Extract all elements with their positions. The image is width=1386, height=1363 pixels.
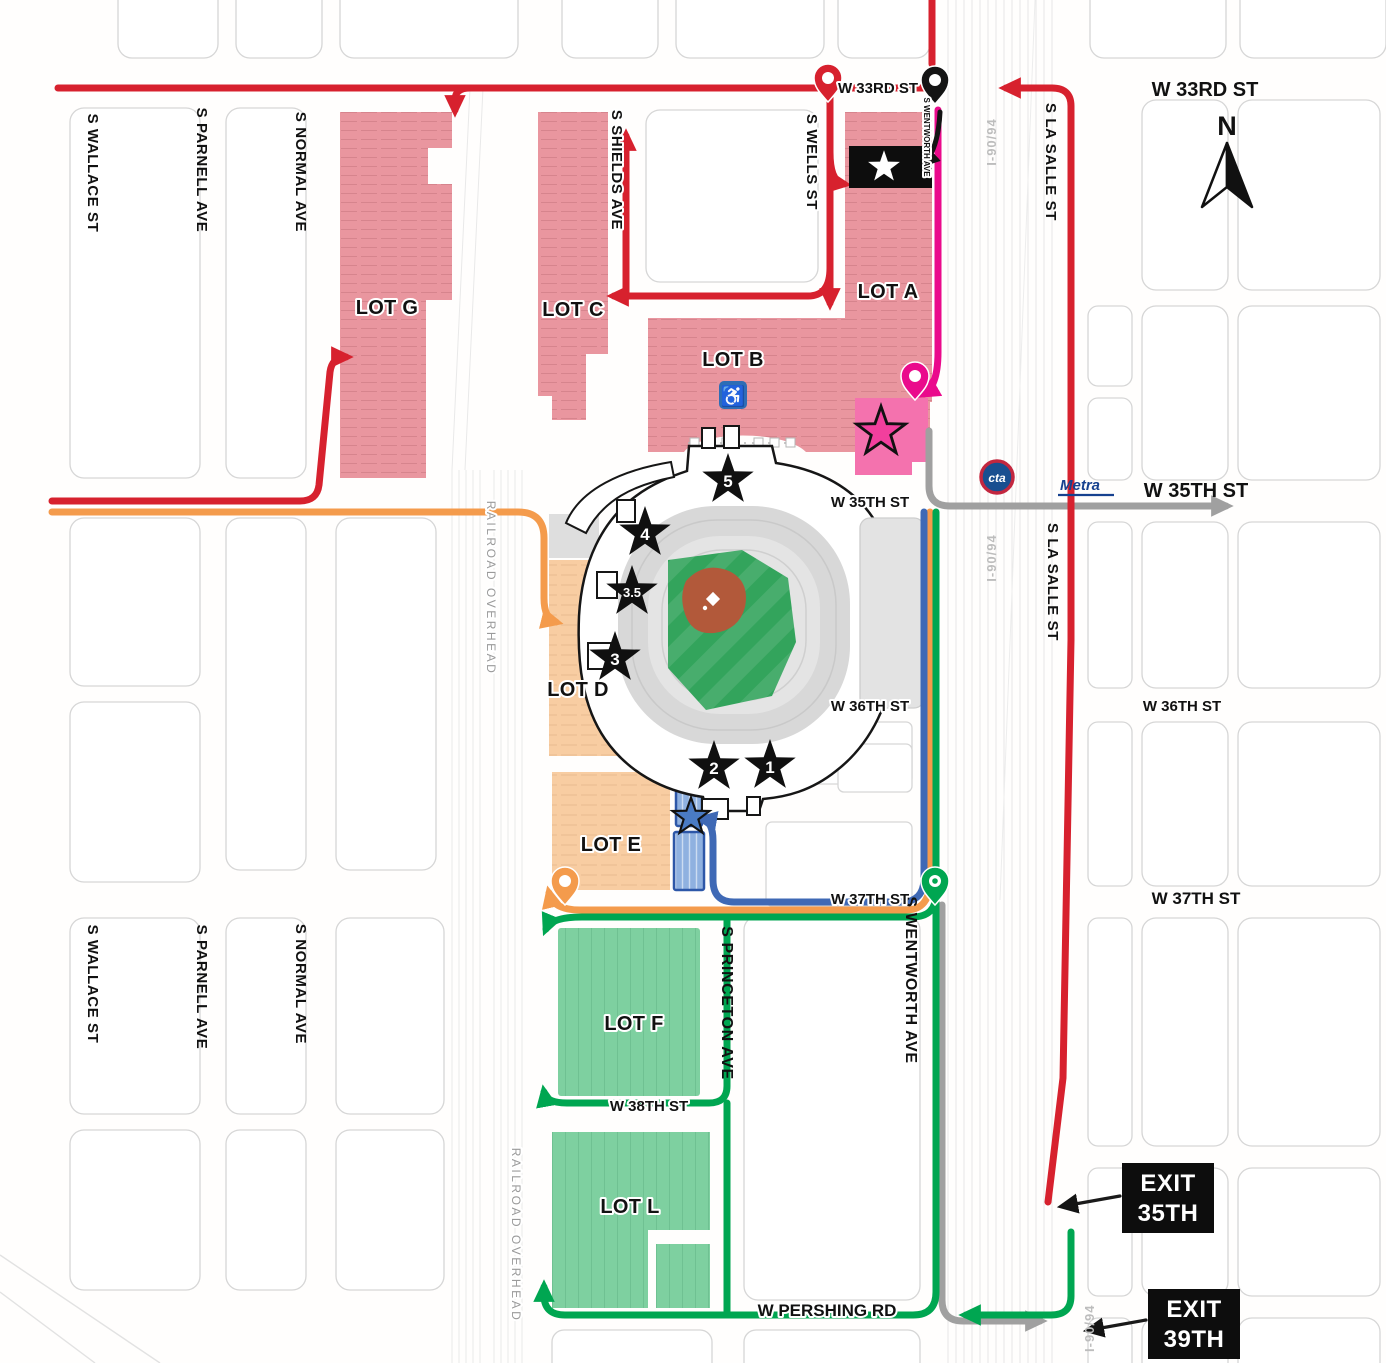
lot-c-label: LOT C xyxy=(542,299,604,321)
lot-f-label: LOT F xyxy=(604,1013,663,1035)
lot-g-shape xyxy=(340,112,452,478)
gate-3-label: 3 xyxy=(610,650,619,669)
gate-3-5-label: 3.5 xyxy=(623,585,641,600)
street-label-wallace-n: S WALLACE ST xyxy=(84,114,101,233)
lot-b-label: LOT B xyxy=(702,349,764,371)
exit-39th-badge: EXIT 39TH xyxy=(1148,1289,1240,1359)
street-label-w38th: W 38TH ST xyxy=(610,1098,688,1115)
street-label-shields: S SHIELDS AVE xyxy=(608,110,625,230)
map-canvas: 5 4 3.5 3 2 1 xyxy=(0,0,1386,1363)
street-label-pershing: W PERSHING RD xyxy=(758,1301,897,1320)
street-label-normal-n: S NORMAL AVE xyxy=(292,112,309,232)
street-label-normal-s: S NORMAL AVE xyxy=(292,924,309,1044)
street-label-w35th-mid: W 35TH ST xyxy=(831,494,909,511)
lot-c-shape xyxy=(538,112,608,420)
east-parking-structure xyxy=(860,518,924,708)
street-label-w37th-right: W 37TH ST xyxy=(1152,889,1241,908)
pitcher-mound xyxy=(703,606,707,610)
exit-35th-line1: EXIT xyxy=(1140,1170,1195,1197)
street-label-w36th-mid: W 36TH ST xyxy=(831,698,909,715)
street-label-lasalle-s: S LA SALLE ST xyxy=(1044,523,1061,641)
expressway-label-n: I-90/94 xyxy=(984,118,999,165)
street-label-w33rd-small: W 33RD ST xyxy=(838,80,918,97)
lot-d-label: LOT D xyxy=(547,679,609,701)
lot-l-annex-shape xyxy=(656,1244,710,1308)
street-label-wells: S WELLS ST xyxy=(803,114,820,210)
street-label-wentworth-small: S WENTWORTH AVE xyxy=(922,97,931,177)
street-label-lasalle-n: S LA SALLE ST xyxy=(1042,103,1059,221)
lot-l-label: LOT L xyxy=(600,1196,659,1218)
lot-f-shape xyxy=(558,928,700,1096)
street-label-parnell-s: S PARNELL AVE xyxy=(193,925,210,1050)
red-branch-normal xyxy=(455,88,470,110)
metra-logo-text: Metra xyxy=(1060,477,1100,494)
red-route-lasalle-33rd xyxy=(1006,88,1071,1202)
parking-traffic-map: 5 4 3.5 3 2 1 xyxy=(0,0,1386,1363)
north-label: N xyxy=(1217,111,1237,141)
street-label-wentworth-big: S WENTWORTH AVE xyxy=(902,896,919,1063)
cta-logo: cta xyxy=(981,461,1013,493)
exit-39th-line1: EXIT xyxy=(1166,1296,1221,1323)
street-label-parnell-n: S PARNELL AVE xyxy=(193,108,210,233)
street-label-princeton: S PRINCETON AVE xyxy=(718,926,735,1080)
red-branch-lotA xyxy=(830,152,844,184)
gate-4-label: 4 xyxy=(640,525,650,544)
lot-a-label: LOT A xyxy=(858,281,919,303)
accessible-parking-icon: ♿ xyxy=(719,381,747,409)
blue-structure-2 xyxy=(674,832,704,890)
gate-5-label: 5 xyxy=(723,472,732,491)
exit-35th-line2: 35TH xyxy=(1138,1200,1199,1227)
railroad-label-n: RAILROAD OVERHEAD xyxy=(484,501,498,676)
gate-1-label: 1 xyxy=(765,758,774,777)
street-label-wallace-s: S WALLACE ST xyxy=(84,925,101,1044)
railroad-label-s: RAILROAD OVERHEAD xyxy=(509,1148,523,1323)
cta-logo-text: cta xyxy=(988,471,1006,485)
railroad-corridor-east xyxy=(948,0,1052,1363)
lot-g-label: LOT G xyxy=(356,297,419,319)
lot-e-label: LOT E xyxy=(581,834,641,856)
expressway-label-mid: I-90/94 xyxy=(984,534,999,581)
street-label-w36th-right: W 36TH ST xyxy=(1143,698,1221,715)
street-label-w35th-right: W 35TH ST xyxy=(1144,480,1248,502)
wheelchair-icon: ♿ xyxy=(721,384,746,408)
gray-route-wentworth-pershing xyxy=(942,905,1040,1321)
gate-2-label: 2 xyxy=(709,759,718,778)
expressway-label-s: I-90/94 xyxy=(1082,1305,1097,1352)
exit-35th-badge: EXIT 35TH xyxy=(1122,1163,1214,1233)
street-label-w37th-mid: W 37TH ST xyxy=(831,891,909,908)
exit-39th-line2: 39TH xyxy=(1164,1326,1225,1353)
street-label-w33rd-big: W 33RD ST xyxy=(1152,79,1259,101)
green-route-exit39 xyxy=(966,1232,1071,1315)
